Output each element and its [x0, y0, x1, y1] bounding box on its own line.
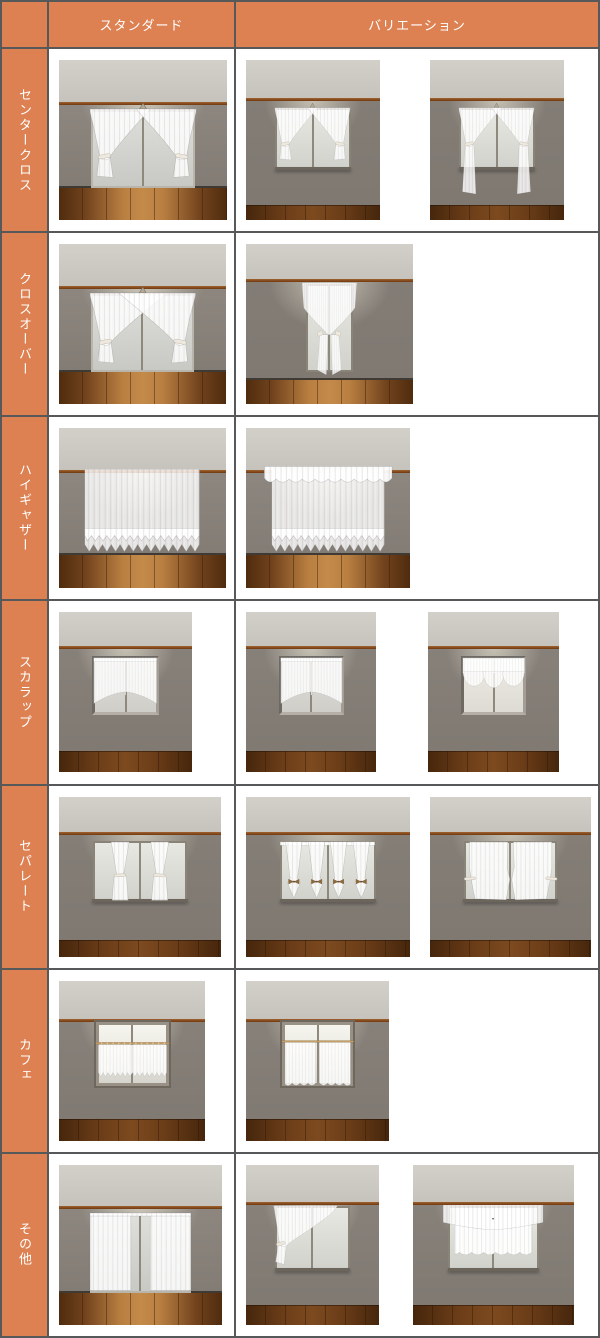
- window: [459, 108, 534, 169]
- curtain-scallop-balloon-graphic: [464, 659, 524, 712]
- column-header-variation: バリエーション: [236, 2, 598, 47]
- scene-separate-bows: [246, 797, 410, 957]
- scene-separate: [59, 797, 221, 957]
- column-header-standard: スタンダード: [49, 2, 234, 47]
- scene-scallop: [246, 612, 376, 772]
- room-floor: [246, 378, 413, 404]
- row-label-crossover-text: クロスオーバー: [18, 272, 31, 377]
- scene-crossover: [59, 244, 226, 404]
- scene-high-gather: [59, 428, 226, 588]
- room-ceiling: [246, 797, 410, 832]
- room-floor: [59, 1119, 205, 1141]
- cell-crossover-standard: [49, 233, 234, 415]
- room-floor: [59, 370, 226, 404]
- row-label-cafe: カフェ: [2, 970, 47, 1152]
- room-floor: [59, 186, 227, 220]
- window: [87, 471, 197, 561]
- cell-other-standard: [49, 1154, 234, 1336]
- wall-trim: [246, 279, 413, 282]
- scene-center-cross: [246, 60, 380, 220]
- wall-trim: [430, 832, 591, 835]
- scene-valance-layered: [413, 1165, 574, 1325]
- window: [282, 1022, 354, 1086]
- room-ceiling: [430, 797, 591, 832]
- room-ceiling: [246, 981, 389, 1019]
- room-ceiling: [59, 612, 192, 646]
- room-floor: [246, 751, 376, 773]
- window: [93, 841, 187, 900]
- cell-center-cross-variation: [236, 49, 598, 231]
- room-floor: [59, 751, 192, 773]
- scene-separate-side: [430, 797, 591, 957]
- room-floor: [246, 940, 410, 957]
- column-header-standard-label: スタンダード: [99, 15, 183, 34]
- wall-trim: [430, 98, 564, 101]
- curtain-separate-side-graphic: [466, 843, 555, 898]
- window: [464, 841, 557, 900]
- scene-high-gather-valance: [246, 428, 410, 588]
- wall-trim: [246, 1202, 379, 1205]
- window-sill: [280, 899, 377, 902]
- window: [279, 656, 344, 715]
- curtain-swag-diagonal-graphic: [277, 1208, 347, 1268]
- room-ceiling: [59, 428, 226, 470]
- cell-other-variation: [236, 1154, 598, 1336]
- cell-cafe-variation: [236, 970, 598, 1152]
- row-label-center-cross-text: センタークロス: [18, 88, 31, 193]
- wall-trim: [246, 832, 410, 835]
- window: [91, 294, 195, 372]
- window: [280, 841, 375, 900]
- room-ceiling: [428, 612, 559, 646]
- curtain-separate-graphic: [95, 843, 185, 898]
- curtain-valance-layered-graphic: [450, 1208, 536, 1268]
- cell-scallop-variation: [236, 601, 598, 783]
- room-floor: [59, 940, 221, 957]
- curtain-high-gather-valance-graphic: [274, 471, 382, 561]
- row-label-other: その他: [2, 1154, 47, 1336]
- window: [91, 110, 195, 188]
- row-label-high-gather: ハイギャザー: [2, 417, 47, 599]
- curtain-crossover-narrow-graphic: [308, 286, 351, 370]
- room-ceiling: [246, 1165, 379, 1202]
- window: [90, 1214, 191, 1292]
- window-sill: [275, 1268, 350, 1271]
- room-ceiling: [59, 60, 227, 102]
- row-label-cafe-text: カフェ: [18, 1038, 31, 1083]
- room-ceiling: [430, 60, 564, 98]
- wall-trim: [59, 832, 221, 835]
- scene-scallop-balloon: [428, 612, 559, 772]
- column-header-variation-label: バリエーション: [368, 15, 466, 34]
- window: [306, 284, 353, 372]
- wall-trim: [59, 646, 192, 649]
- curtain-cafe-graphic: [99, 1025, 166, 1083]
- corner-cell: [2, 2, 47, 47]
- row-label-separate-text: セパレート: [18, 839, 31, 914]
- window: [275, 108, 350, 169]
- cell-separate-standard: [49, 786, 234, 968]
- room-floor: [59, 1291, 222, 1325]
- wall-trim: [413, 1202, 574, 1205]
- window: [275, 1206, 349, 1270]
- curtain-scallop-graphic: [95, 659, 156, 712]
- curtain-scallop-graphic: [282, 659, 341, 712]
- wall-trim: [428, 646, 559, 649]
- room-floor: [428, 751, 559, 773]
- curtain-cafe-wavy-graphic: [285, 1025, 351, 1083]
- room-ceiling: [246, 244, 413, 279]
- room-ceiling: [413, 1165, 574, 1202]
- room-floor: [246, 1305, 379, 1325]
- scene-center-cross: [59, 60, 227, 220]
- window: [274, 471, 382, 561]
- room-ceiling: [246, 60, 380, 98]
- scene-crossover-narrow: [246, 244, 413, 404]
- room-floor: [413, 1305, 574, 1325]
- window: [448, 1206, 538, 1270]
- curtain-center-cross-graphic: [93, 112, 193, 186]
- scene-scallop: [59, 612, 192, 772]
- curtain-panels-straight-graphic: [92, 1216, 189, 1290]
- row-label-other-text: その他: [18, 1222, 31, 1267]
- cell-cafe-standard: [49, 970, 234, 1152]
- cell-center-cross-standard: [49, 49, 234, 231]
- curtain-separate-bows-graphic: [282, 843, 373, 898]
- row-label-crossover: クロスオーバー: [2, 233, 47, 415]
- curtain-crossover-graphic: [93, 296, 193, 370]
- room-ceiling: [246, 612, 376, 646]
- room-floor: [246, 1119, 389, 1141]
- curtain-style-comparison-table: スタンダード バリエーション センタークロスクロスオーバーハイギャザースカラップ…: [0, 0, 600, 1338]
- wall-trim: [59, 1206, 222, 1209]
- window-sill: [92, 899, 187, 902]
- window-sill: [275, 167, 350, 170]
- row-label-scallop: スカラップ: [2, 601, 47, 783]
- window: [96, 1022, 169, 1086]
- wall-trim: [246, 98, 380, 101]
- row-label-separate: セパレート: [2, 786, 47, 968]
- room-ceiling: [59, 1165, 222, 1207]
- scene-swag-diagonal: [246, 1165, 379, 1325]
- window: [92, 656, 159, 715]
- window: [461, 656, 527, 715]
- cell-scallop-standard: [49, 601, 234, 783]
- curtain-center-cross-graphic: [277, 110, 348, 167]
- scene-panels-straight: [59, 1165, 222, 1325]
- scene-cafe: [59, 981, 205, 1141]
- room-floor: [430, 205, 564, 220]
- row-label-scallop-text: スカラップ: [18, 655, 31, 730]
- curtain-center-cross-long-graphic: [461, 110, 532, 167]
- cell-high-gather-standard: [49, 417, 234, 599]
- room-floor: [430, 940, 591, 957]
- cell-crossover-variation: [236, 233, 598, 415]
- window-sill: [448, 1268, 539, 1271]
- row-label-high-gather-text: ハイギャザー: [18, 463, 31, 553]
- wall-trim: [246, 646, 376, 649]
- row-label-center-cross: センタークロス: [2, 49, 47, 231]
- room-ceiling: [59, 244, 226, 286]
- scene-cafe-wavy: [246, 981, 389, 1141]
- curtain-high-gather-graphic: [87, 471, 197, 561]
- room-floor: [246, 205, 380, 220]
- cell-high-gather-variation: [236, 417, 598, 599]
- room-ceiling: [59, 797, 221, 832]
- cell-separate-variation: [236, 786, 598, 968]
- room-ceiling: [59, 981, 205, 1019]
- room-ceiling: [246, 428, 410, 470]
- scene-center-cross-long: [430, 60, 564, 220]
